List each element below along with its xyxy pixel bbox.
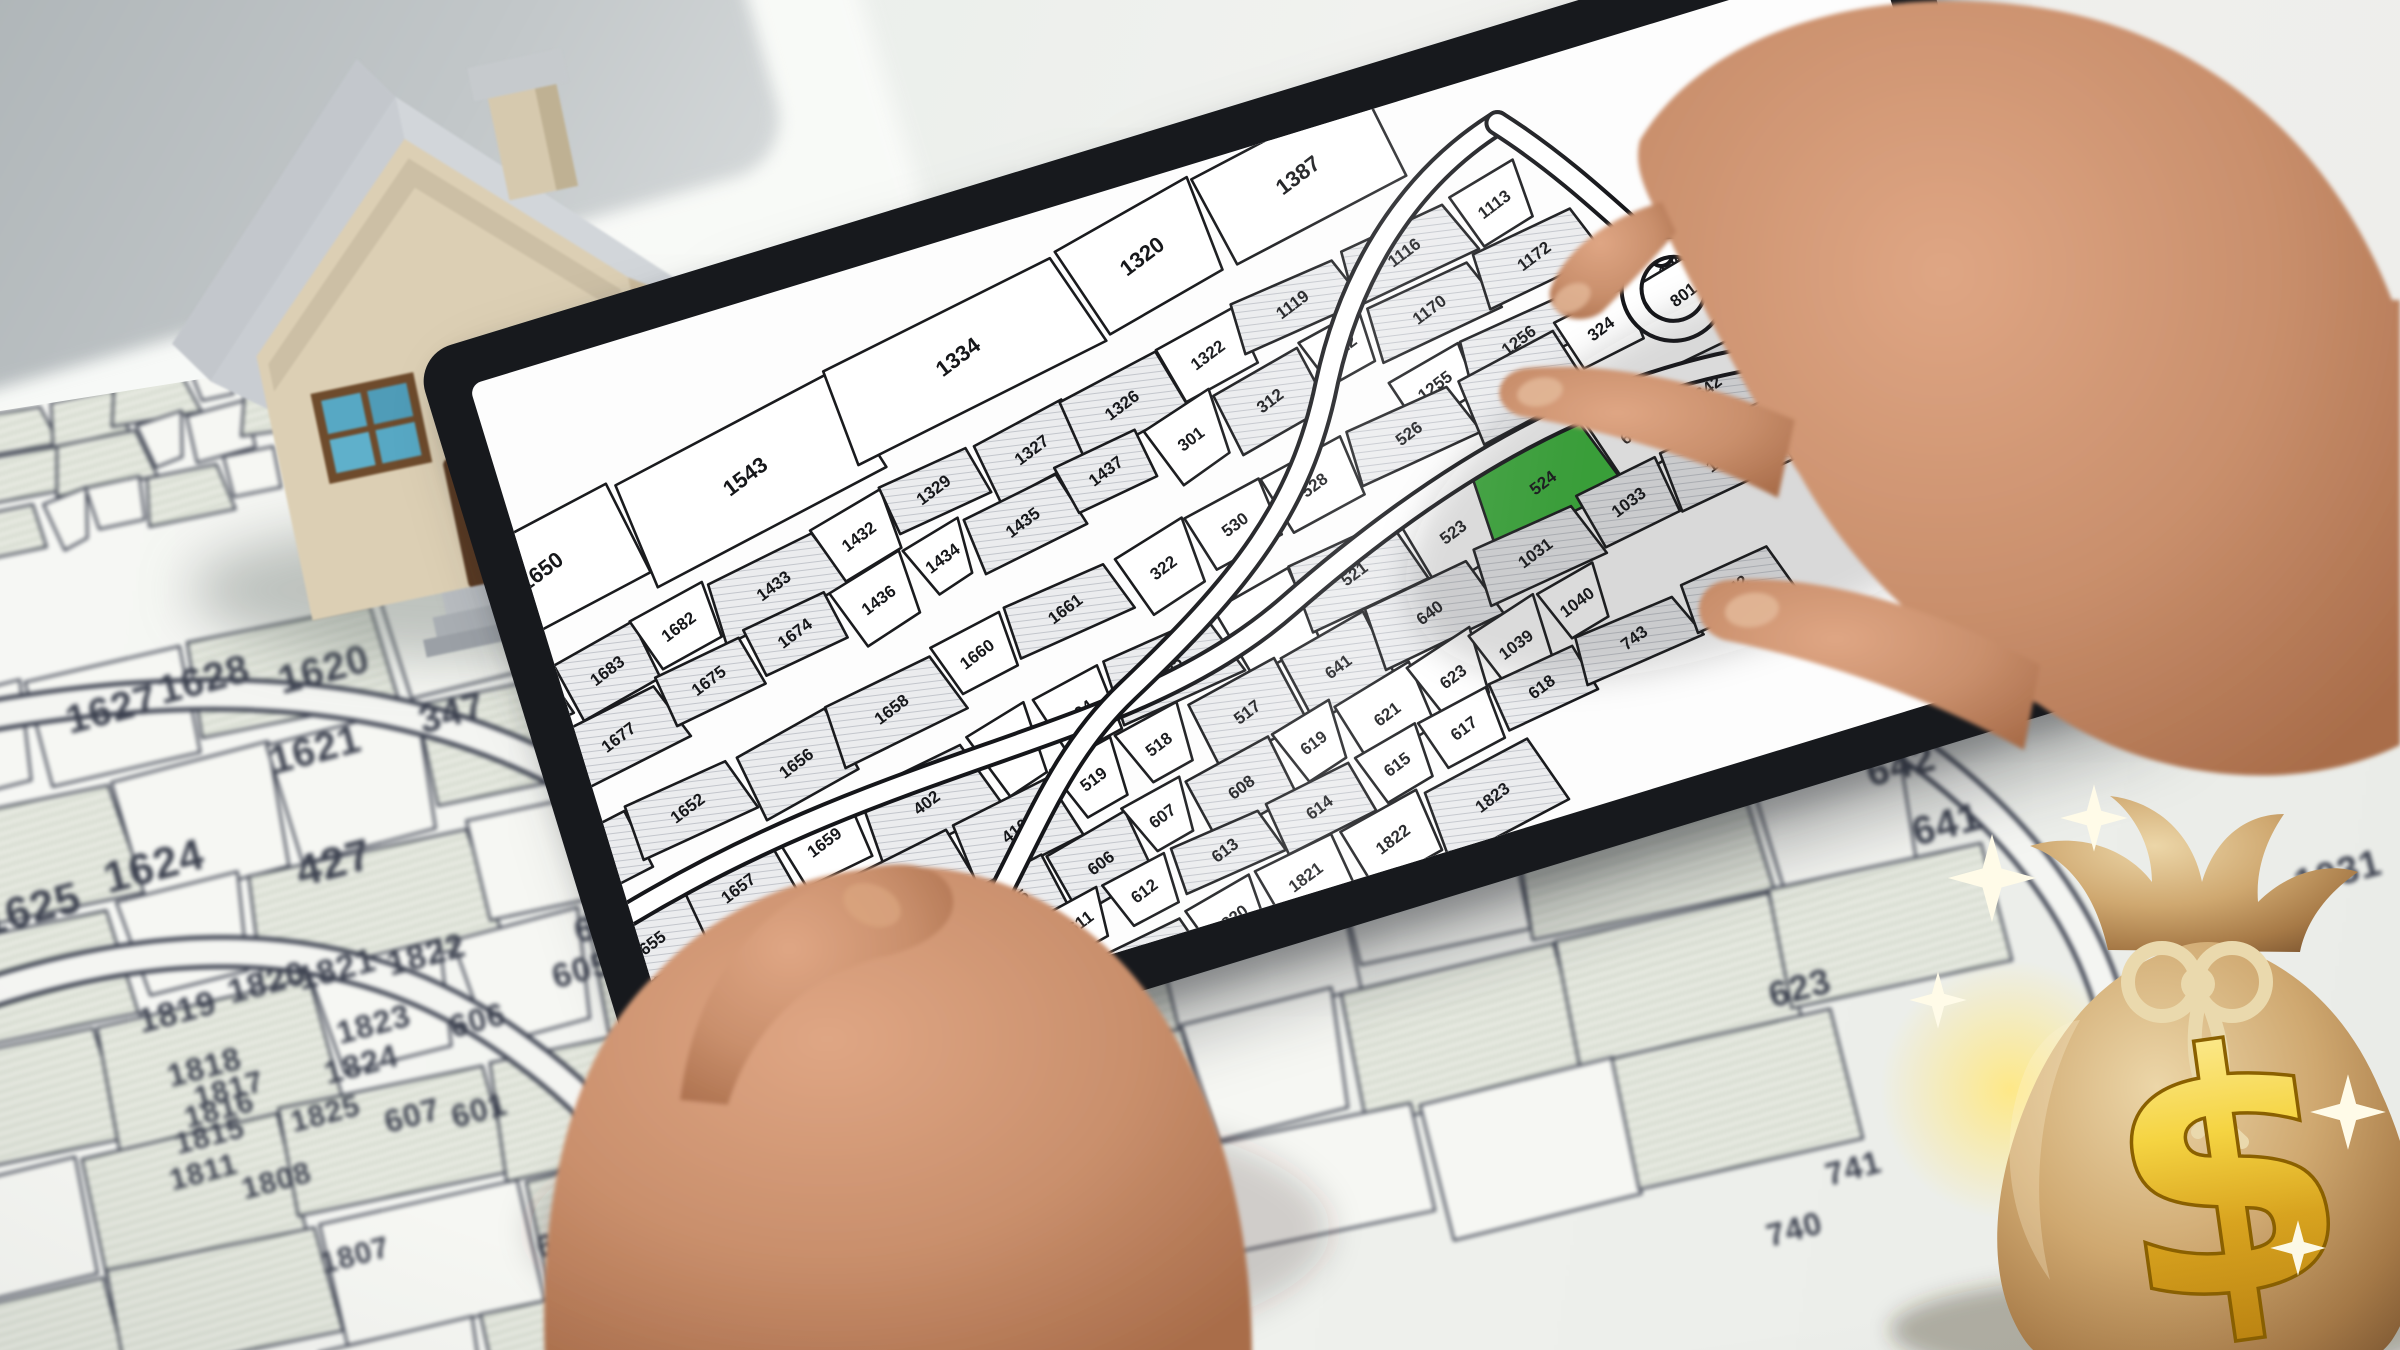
parcel <box>43 487 87 550</box>
parcel-label: 1808 <box>799 1053 841 1086</box>
parcel-label: 1654 <box>573 842 615 880</box>
parcel <box>1953 48 2039 126</box>
paper-parcel-label: 740 <box>1762 1204 1826 1253</box>
paper-parcel-label: 921 <box>2217 710 2285 762</box>
paper-parcel-label: 741 <box>1821 1143 1885 1192</box>
parcel <box>0 504 47 561</box>
parcel-label: 805 <box>1983 70 2017 102</box>
paper-parcel-label: 1824 <box>320 1037 402 1091</box>
photo-scene: 1627162816201621347425424162442716256026… <box>0 0 2400 1350</box>
selected-parcel-edge <box>2010 529 2079 630</box>
parcel-label: 1818 <box>1121 954 1163 992</box>
paper-parcel-label: 1031 <box>2290 842 2386 905</box>
